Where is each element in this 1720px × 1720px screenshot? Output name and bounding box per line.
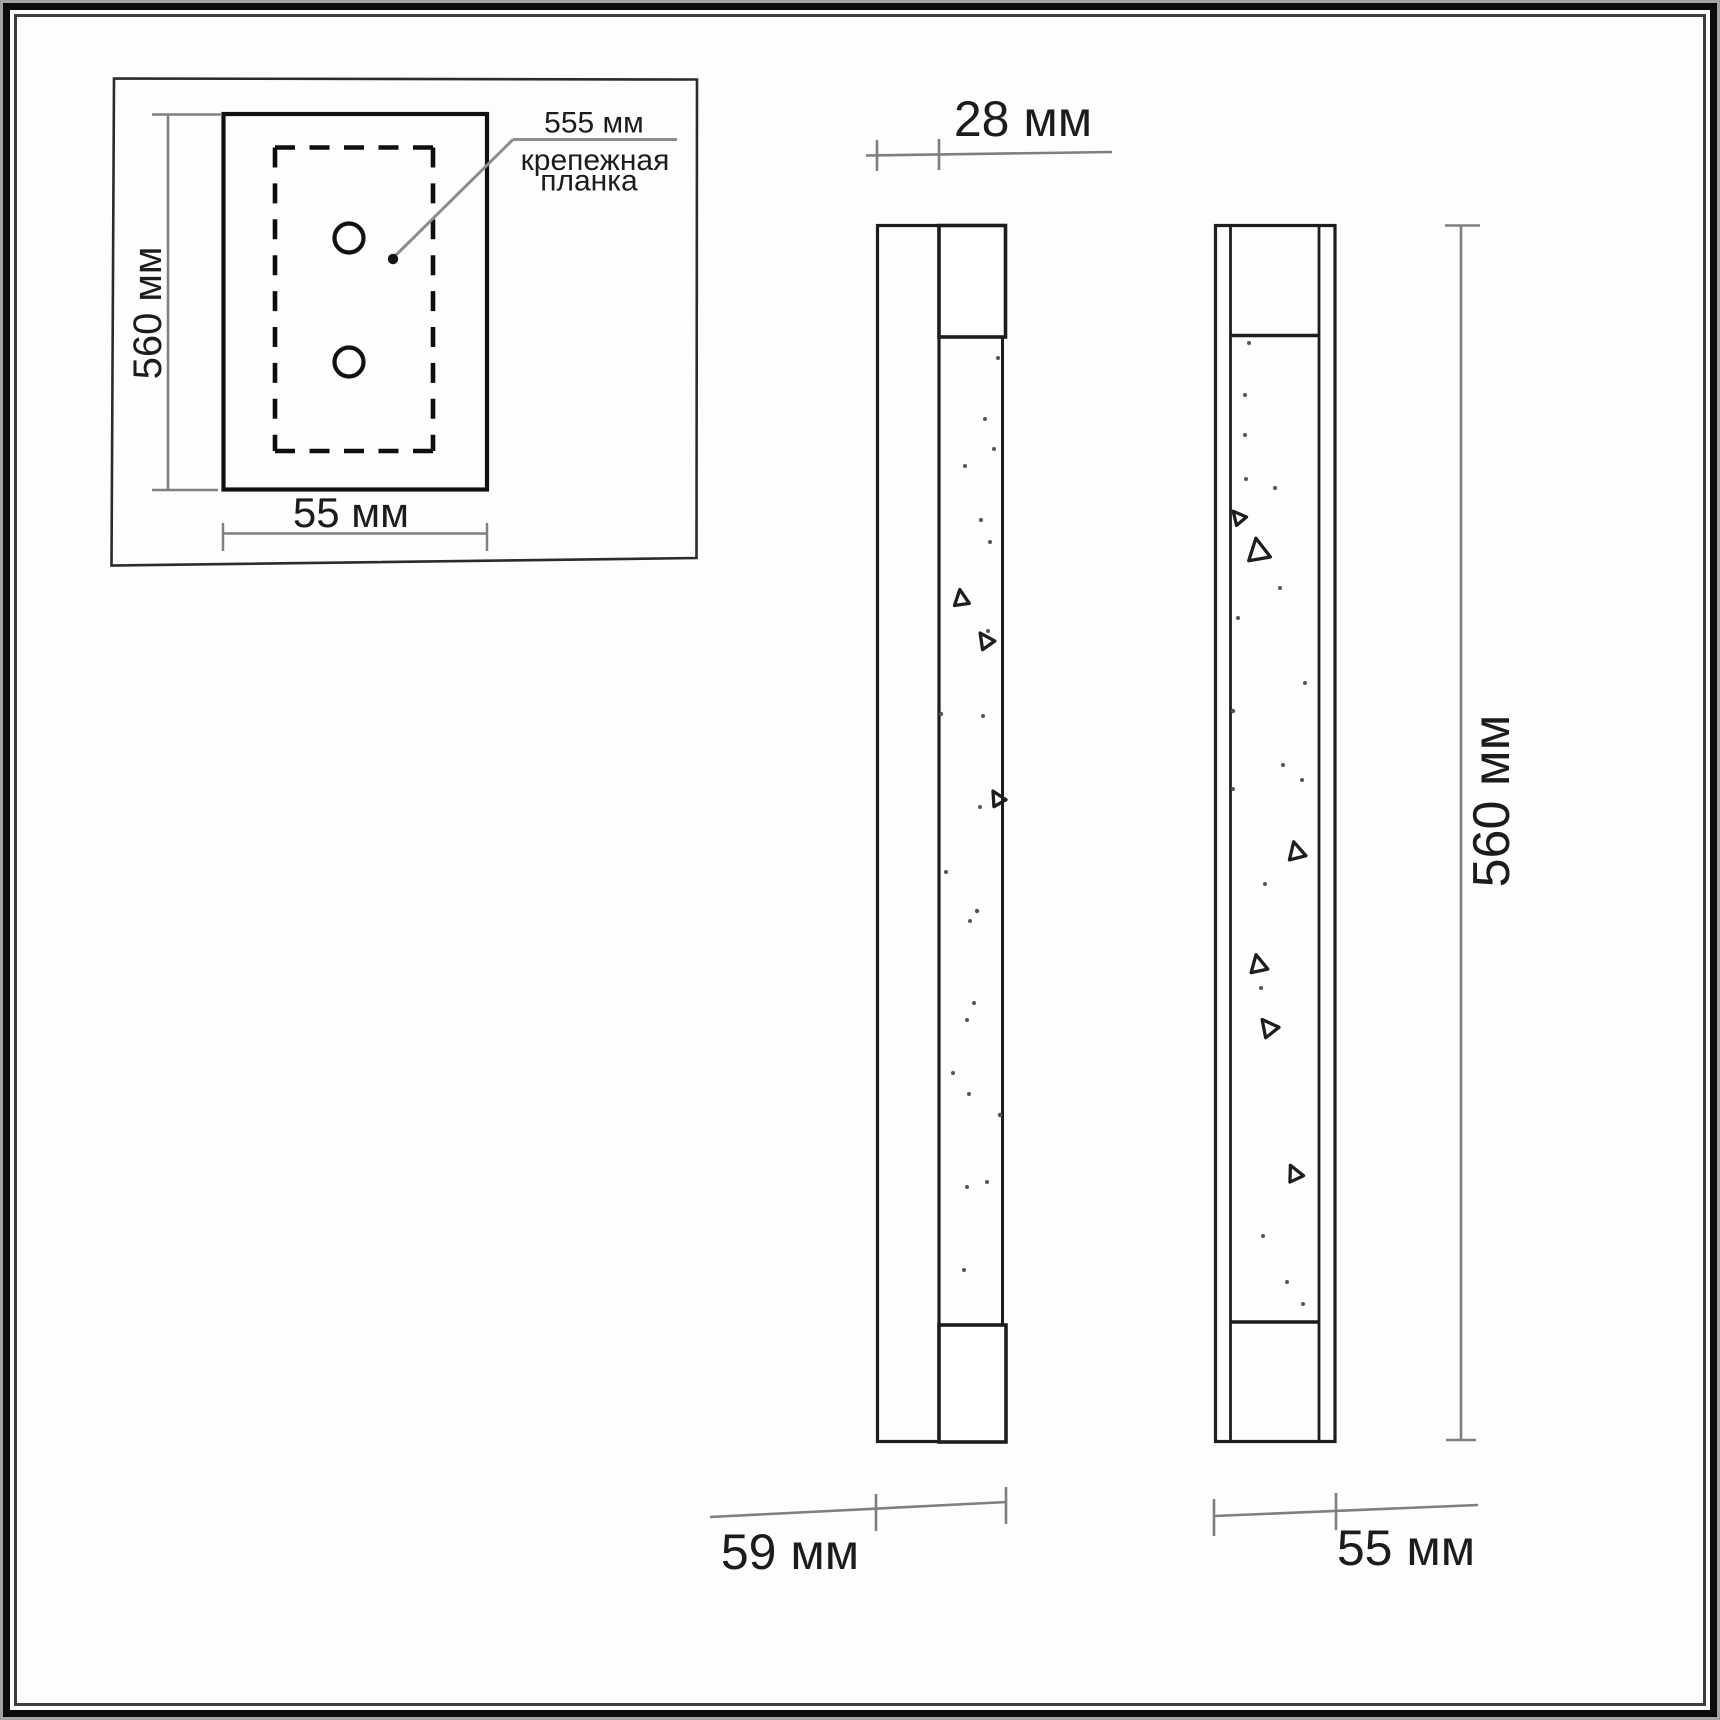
svg-text:планка: планка [540,165,638,198]
svg-text:555 мм: 555 мм [544,107,644,140]
svg-text:55 мм: 55 мм [1337,1520,1475,1576]
svg-text:560 мм: 560 мм [126,247,170,380]
svg-text:560 мм: 560 мм [1463,715,1521,888]
svg-text:59 мм: 59 мм [721,1524,859,1580]
svg-text:55 мм: 55 мм [293,489,409,536]
svg-text:28 мм: 28 мм [954,91,1092,147]
